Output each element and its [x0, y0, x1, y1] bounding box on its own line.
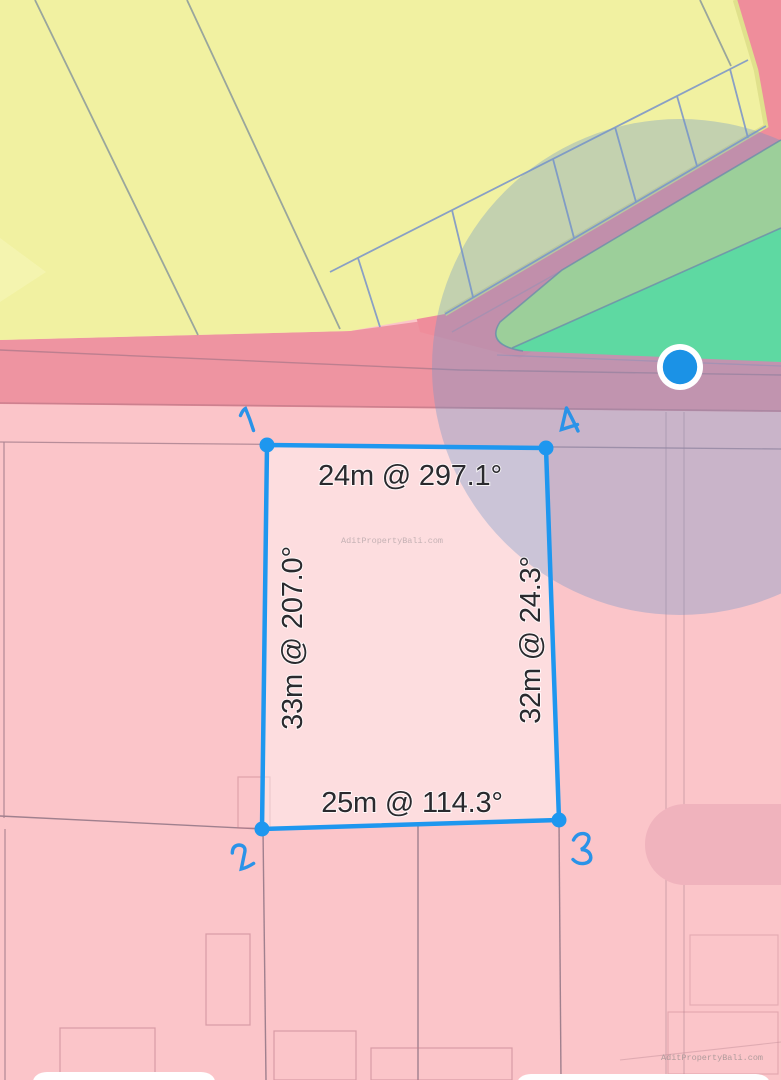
- svg-text:32m @ 24.3°: 32m @ 24.3°: [515, 556, 547, 724]
- svg-text:AditPropertyBali.com: AditPropertyBali.com: [661, 1053, 763, 1063]
- svg-text:25m @ 114.3°: 25m @ 114.3°: [321, 787, 503, 819]
- svg-text:33m @ 207.0°: 33m @ 207.0°: [277, 546, 309, 730]
- svg-text:24m @ 297.1°: 24m @ 297.1°: [318, 460, 502, 492]
- svg-text:AditPropertyBali.com: AditPropertyBali.com: [341, 536, 443, 546]
